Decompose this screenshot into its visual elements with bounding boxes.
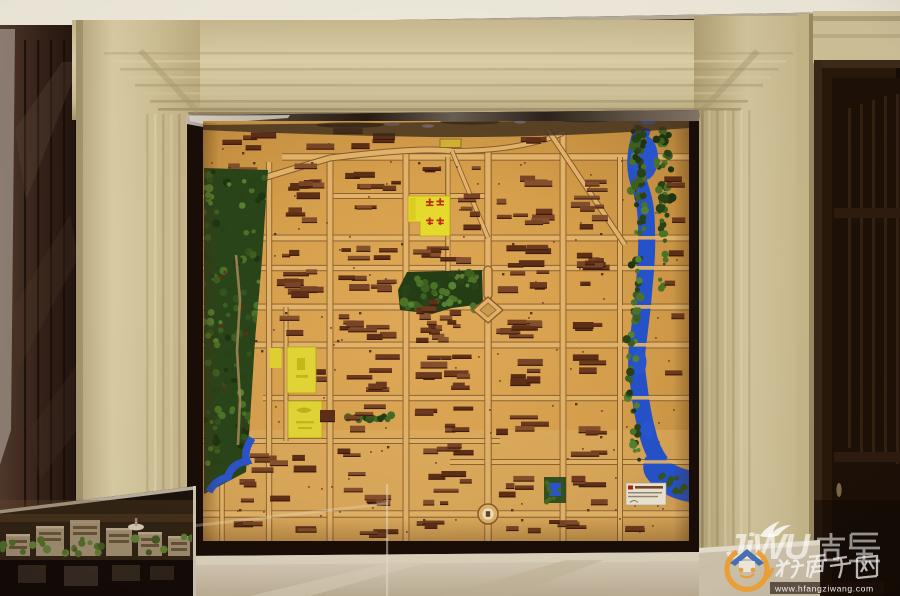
svg-text:www.hfangziwang.com: www.hfangziwang.com — [774, 584, 874, 594]
